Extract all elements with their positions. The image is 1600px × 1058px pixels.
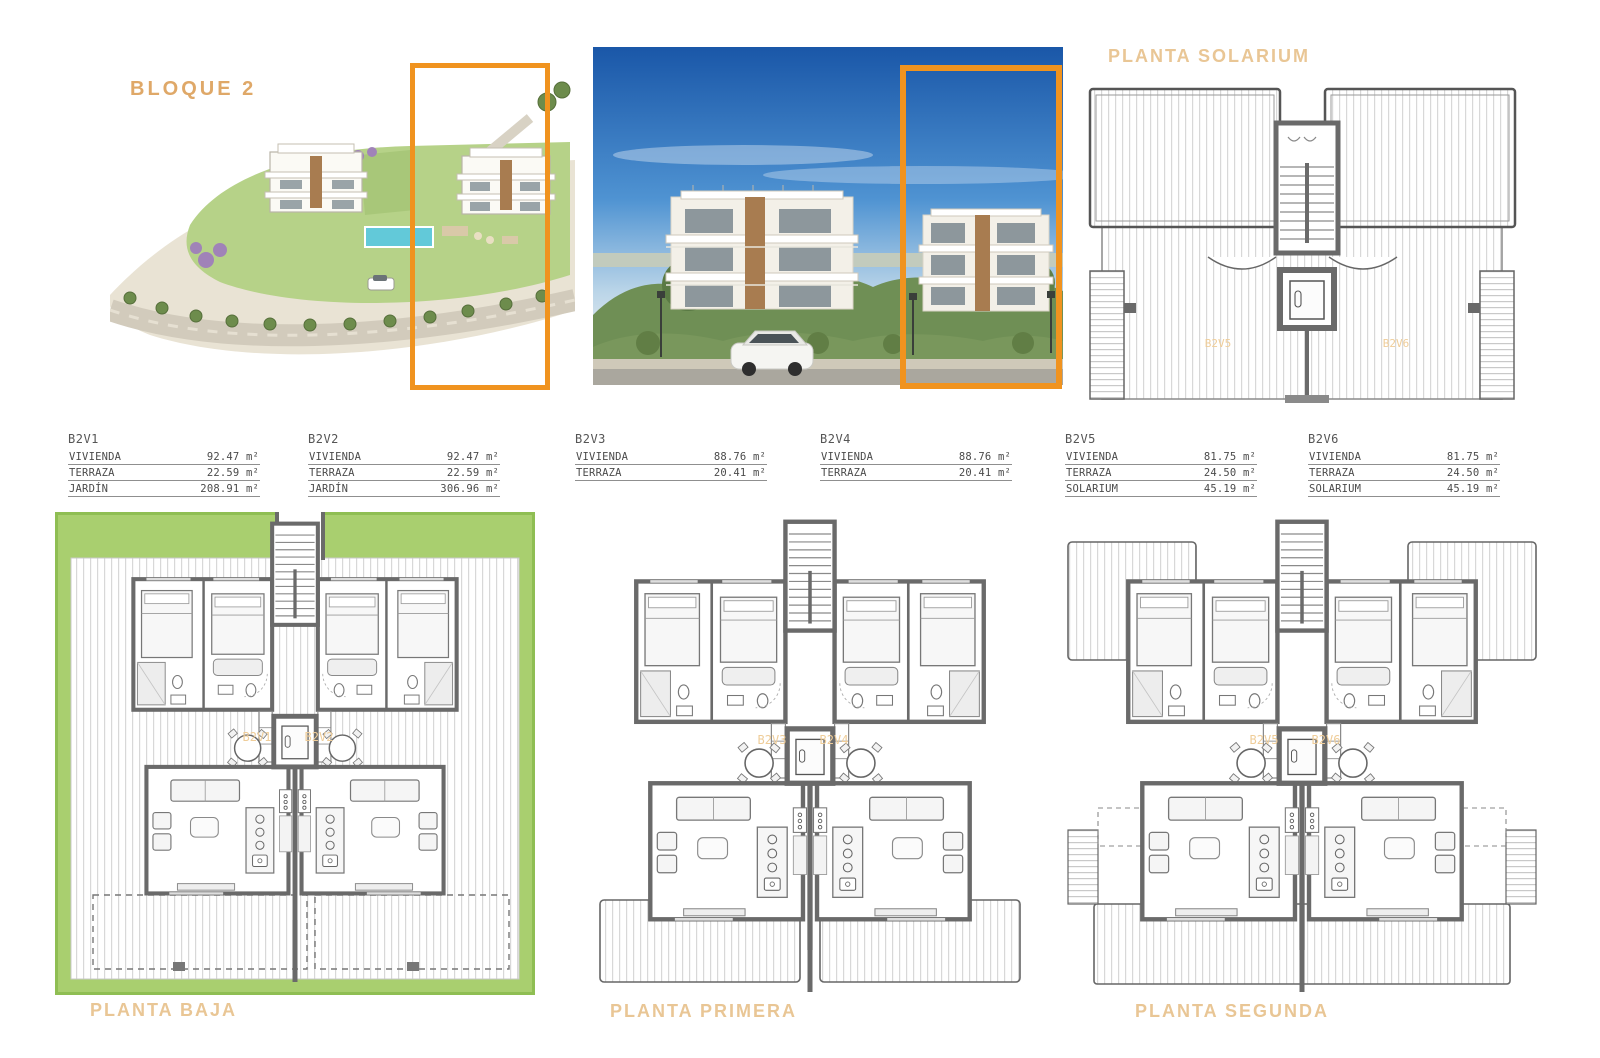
row-label: JARDÍN — [69, 483, 108, 495]
row-value: 20.41 m² — [959, 467, 1011, 479]
planta-segunda-title: PLANTA SEGUNDA — [1135, 1001, 1329, 1022]
row-label: VIVIENDA — [821, 451, 873, 463]
planta-baja-title: PLANTA BAJA — [90, 1000, 237, 1021]
row-label: TERRAZA — [821, 467, 867, 479]
solarium-floor-plan: B2V5 B2V6 — [1080, 85, 1525, 405]
row-value: 92.47 m² — [207, 451, 259, 463]
row-label: TERRAZA — [69, 467, 115, 479]
aerial-render-image: BLOQUE 2 — [110, 60, 575, 395]
area-table-b2v1: B2V1 VIVIENDA92.47 m² TERRAZA22.59 m² JA… — [68, 432, 260, 497]
area-table-b2v5: B2V5 VIVIENDA81.75 m² TERRAZA24.50 m² SO… — [1065, 432, 1257, 497]
row-label: TERRAZA — [1309, 467, 1355, 479]
baja-unit-right-label: B2V2 — [305, 730, 334, 744]
planta-segunda-plan: B2V5 B2V6 — [1062, 512, 1542, 995]
row-label: TERRAZA — [309, 467, 355, 479]
row-label: JARDÍN — [309, 483, 348, 495]
row-label: VIVIENDA — [69, 451, 121, 463]
primera-unit-right-label: B2V4 — [820, 733, 849, 747]
brochure-page: BLOQUE 2 — [0, 0, 1600, 1058]
table-title: B2V1 — [68, 432, 260, 446]
row-value: 88.76 m² — [959, 451, 1011, 463]
baja-unit-left-label: B2V1 — [243, 730, 272, 744]
row-value: 208.91 m² — [200, 483, 259, 495]
table-title: B2V6 — [1308, 432, 1500, 446]
row-value: 20.41 m² — [714, 467, 766, 479]
row-value: 45.19 m² — [1447, 483, 1499, 495]
row-label: VIVIENDA — [1066, 451, 1118, 463]
row-value: 22.59 m² — [447, 467, 499, 479]
row-value: 24.50 m² — [1447, 467, 1499, 479]
row-label: VIVIENDA — [1309, 451, 1361, 463]
solarium-unit-right-label: B2V6 — [1383, 337, 1410, 350]
row-label: SOLARIUM — [1066, 483, 1118, 495]
row-label: TERRAZA — [1066, 467, 1112, 479]
area-table-b2v6: B2V6 VIVIENDA81.75 m² TERRAZA24.50 m² SO… — [1308, 432, 1500, 497]
highlight-frame-aerial — [410, 63, 550, 390]
row-value: 24.50 m² — [1204, 467, 1256, 479]
row-value: 22.59 m² — [207, 467, 259, 479]
row-value: 88.76 m² — [714, 451, 766, 463]
bloque-label: BLOQUE 2 — [130, 78, 256, 101]
planta-primera-title: PLANTA PRIMERA — [610, 1001, 797, 1022]
area-table-b2v3: B2V3 VIVIENDA88.76 m² TERRAZA20.41 m² — [575, 432, 767, 481]
primera-unit-left-label: B2V3 — [758, 733, 787, 747]
table-title: B2V4 — [820, 432, 1012, 446]
solarium-title: PLANTA SOLARIUM — [1108, 46, 1310, 67]
row-value: 81.75 m² — [1447, 451, 1499, 463]
street-render-image — [593, 47, 1063, 392]
solarium-unit-left-label: B2V5 — [1205, 337, 1232, 350]
table-title: B2V5 — [1065, 432, 1257, 446]
row-label: VIVIENDA — [309, 451, 361, 463]
segunda-unit-right-label: B2V6 — [1312, 733, 1341, 747]
row-value: 306.96 m² — [440, 483, 499, 495]
row-label: VIVIENDA — [576, 451, 628, 463]
segunda-unit-left-label: B2V5 — [1250, 733, 1279, 747]
planta-baja-plan: B2V1 B2V2 — [55, 512, 535, 995]
row-label: SOLARIUM — [1309, 483, 1361, 495]
row-value: 81.75 m² — [1204, 451, 1256, 463]
row-label: TERRAZA — [576, 467, 622, 479]
table-title: B2V3 — [575, 432, 767, 446]
area-table-b2v4: B2V4 VIVIENDA88.76 m² TERRAZA20.41 m² — [820, 432, 1012, 481]
area-table-b2v2: B2V2 VIVIENDA92.47 m² TERRAZA22.59 m² JA… — [308, 432, 500, 497]
table-title: B2V2 — [308, 432, 500, 446]
planta-primera-plan: B2V3 B2V4 — [570, 512, 1050, 995]
row-value: 45.19 m² — [1204, 483, 1256, 495]
row-value: 92.47 m² — [447, 451, 499, 463]
